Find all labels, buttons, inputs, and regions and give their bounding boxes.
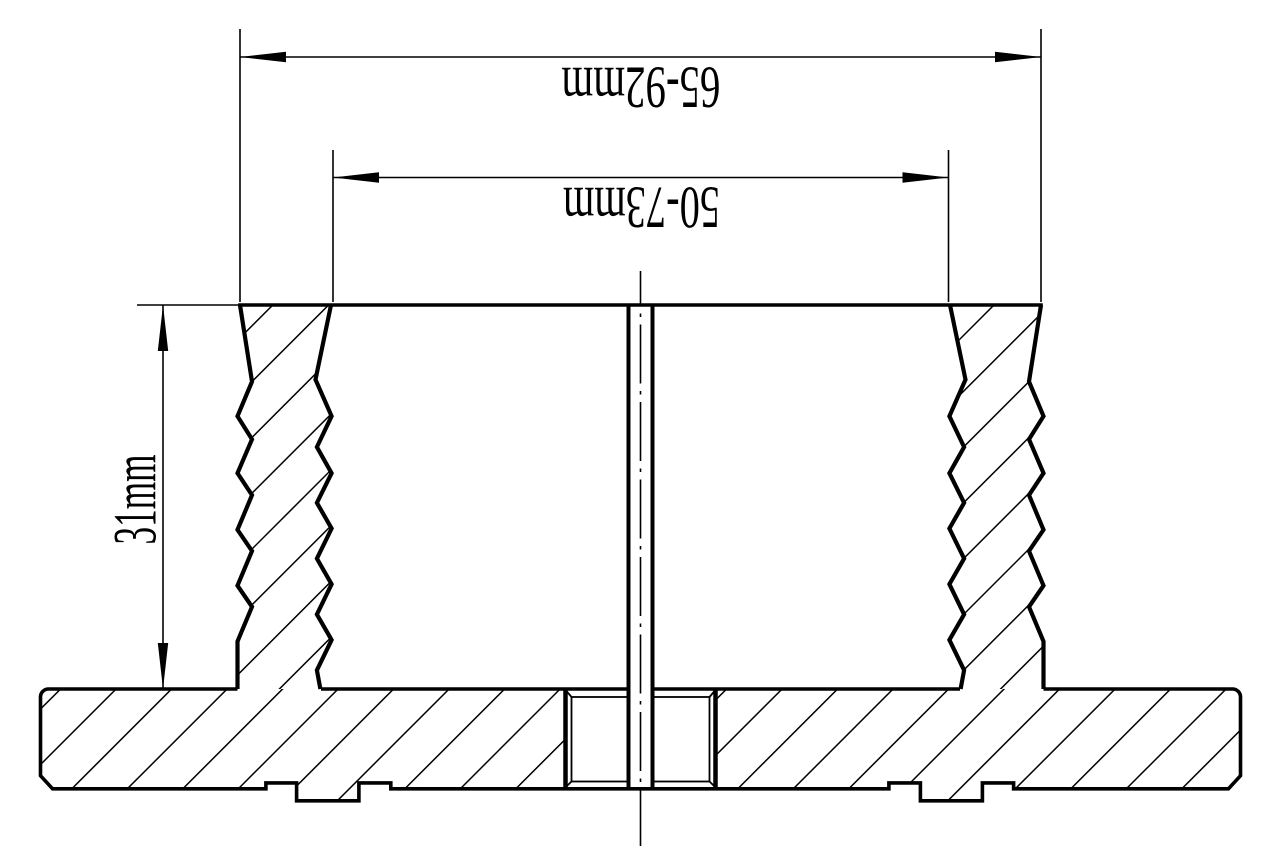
svg-text:65-92mm: 65-92mm	[562, 55, 721, 121]
svg-text:31mm: 31mm	[103, 455, 170, 545]
svg-text:50-73mm: 50-73mm	[563, 174, 720, 240]
